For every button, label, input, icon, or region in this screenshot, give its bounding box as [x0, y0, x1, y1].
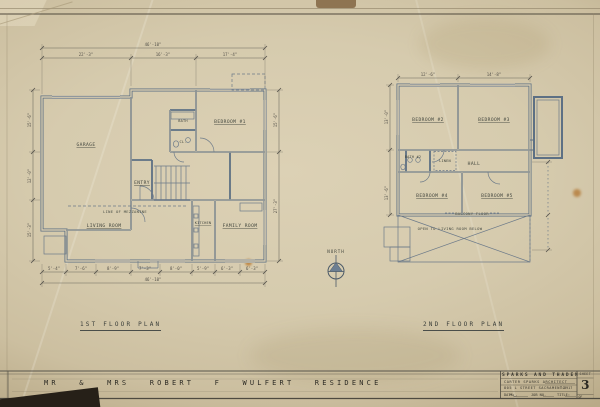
dim-label: 12'-0"	[27, 169, 32, 183]
address-line: 805 L STREET SACRAMENTO	[504, 386, 565, 390]
label-living-room: LIVING ROOM	[87, 223, 122, 229]
roof-annex	[530, 97, 562, 158]
label-family-room: FAMILY ROOM	[223, 223, 258, 229]
dim-label: 12'-6"	[421, 72, 435, 77]
first-floor-plan	[42, 74, 266, 268]
north-label: NORTH	[327, 249, 345, 254]
north-arrow: NORTH	[327, 249, 345, 287]
dim-label: 22'-3"	[79, 52, 93, 57]
note-mezzanine: LINE OF MEZZANINE	[103, 209, 147, 214]
sheet-border	[0, 2, 600, 398]
label-bedroom5: BEDROOM #5	[481, 193, 513, 199]
note-balcony: BALCONY FLOOR	[455, 211, 489, 216]
dim-ff-overall-top: 46'-10"	[145, 42, 162, 47]
of-label: OF	[579, 395, 583, 399]
date-label: DATE:	[504, 393, 515, 397]
caption-second-floor: 2ND FLOOR PLAN	[423, 321, 504, 331]
dim-label: 8'-0"	[170, 266, 182, 271]
firm-name: SPARKS AND THADEN	[502, 373, 576, 378]
dim-label: 13'-0"	[384, 110, 389, 124]
dim-label: 13'-6"	[384, 186, 389, 200]
label-bedroom3: BEDROOM #3	[478, 117, 510, 123]
title-label: TITLE:	[557, 393, 570, 397]
label-garage: GARAGE	[77, 142, 96, 148]
dim-label: 16'-3"	[156, 52, 170, 57]
residence-title: MR & MRS ROBERT F WULFERT RESIDENCE	[44, 379, 382, 387]
dim-label: 14'-8"	[487, 72, 501, 77]
dim-label: 7'-3"	[139, 266, 151, 271]
label-bath1: BATH	[178, 119, 187, 123]
dim-label: 15'-6"	[27, 113, 32, 127]
note-open-below: OPEN TO LIVING ROOM BELOW	[418, 226, 483, 231]
phone: T-3917	[560, 386, 572, 390]
dim-label: 6'-3"	[221, 266, 233, 271]
label-bedroom4: BEDROOM #4	[416, 193, 448, 199]
caption-first-floor: 1ST FLOOR PLAN	[80, 321, 161, 331]
dim-label: 17'-4"	[223, 52, 237, 57]
dim-label: 8'-9"	[107, 266, 119, 271]
label-bedroom2: BEDROOM #2	[412, 117, 444, 123]
dim-label: 6'-3"	[246, 266, 258, 271]
dim-label: 5'-4"	[48, 266, 60, 271]
job-label: JOB NO.	[531, 393, 546, 397]
blueprint-sheet: 46'-10" 22'-3" 16'-3" 17'-4" 5'-4" 7'-6"…	[0, 0, 600, 407]
dim-label: 15'-6"	[273, 113, 278, 127]
label-hall: HALL	[468, 161, 481, 167]
label-entry: ENTRY	[134, 180, 150, 186]
dim-label: 7'-6"	[75, 266, 87, 271]
label-bath2: BATH #2	[405, 155, 422, 159]
dim-label: 15'-3"	[27, 223, 32, 237]
stairs	[154, 166, 190, 200]
dim-label: 5'-9"	[197, 266, 209, 271]
sheet-label: SHEET	[577, 372, 594, 376]
label-closet: CL.	[179, 140, 186, 144]
dim-label: 27'-3"	[273, 199, 278, 213]
blueprint-drawing: 46'-10" 22'-3" 16'-3" 17'-4" 5'-4" 7'-6"…	[0, 0, 600, 407]
dim-ff-overall-bottom: 46'-10"	[145, 277, 162, 282]
label-bedroom1: BEDROOM #1	[214, 119, 246, 125]
label-linen: LINEN	[439, 159, 451, 163]
architect-line: CARTER SPARKS ARCHITECT	[504, 380, 568, 384]
second-floor-plan	[384, 84, 562, 262]
label-kitchen: KITCHEN	[195, 221, 212, 225]
sheet-number: 3	[577, 378, 594, 392]
